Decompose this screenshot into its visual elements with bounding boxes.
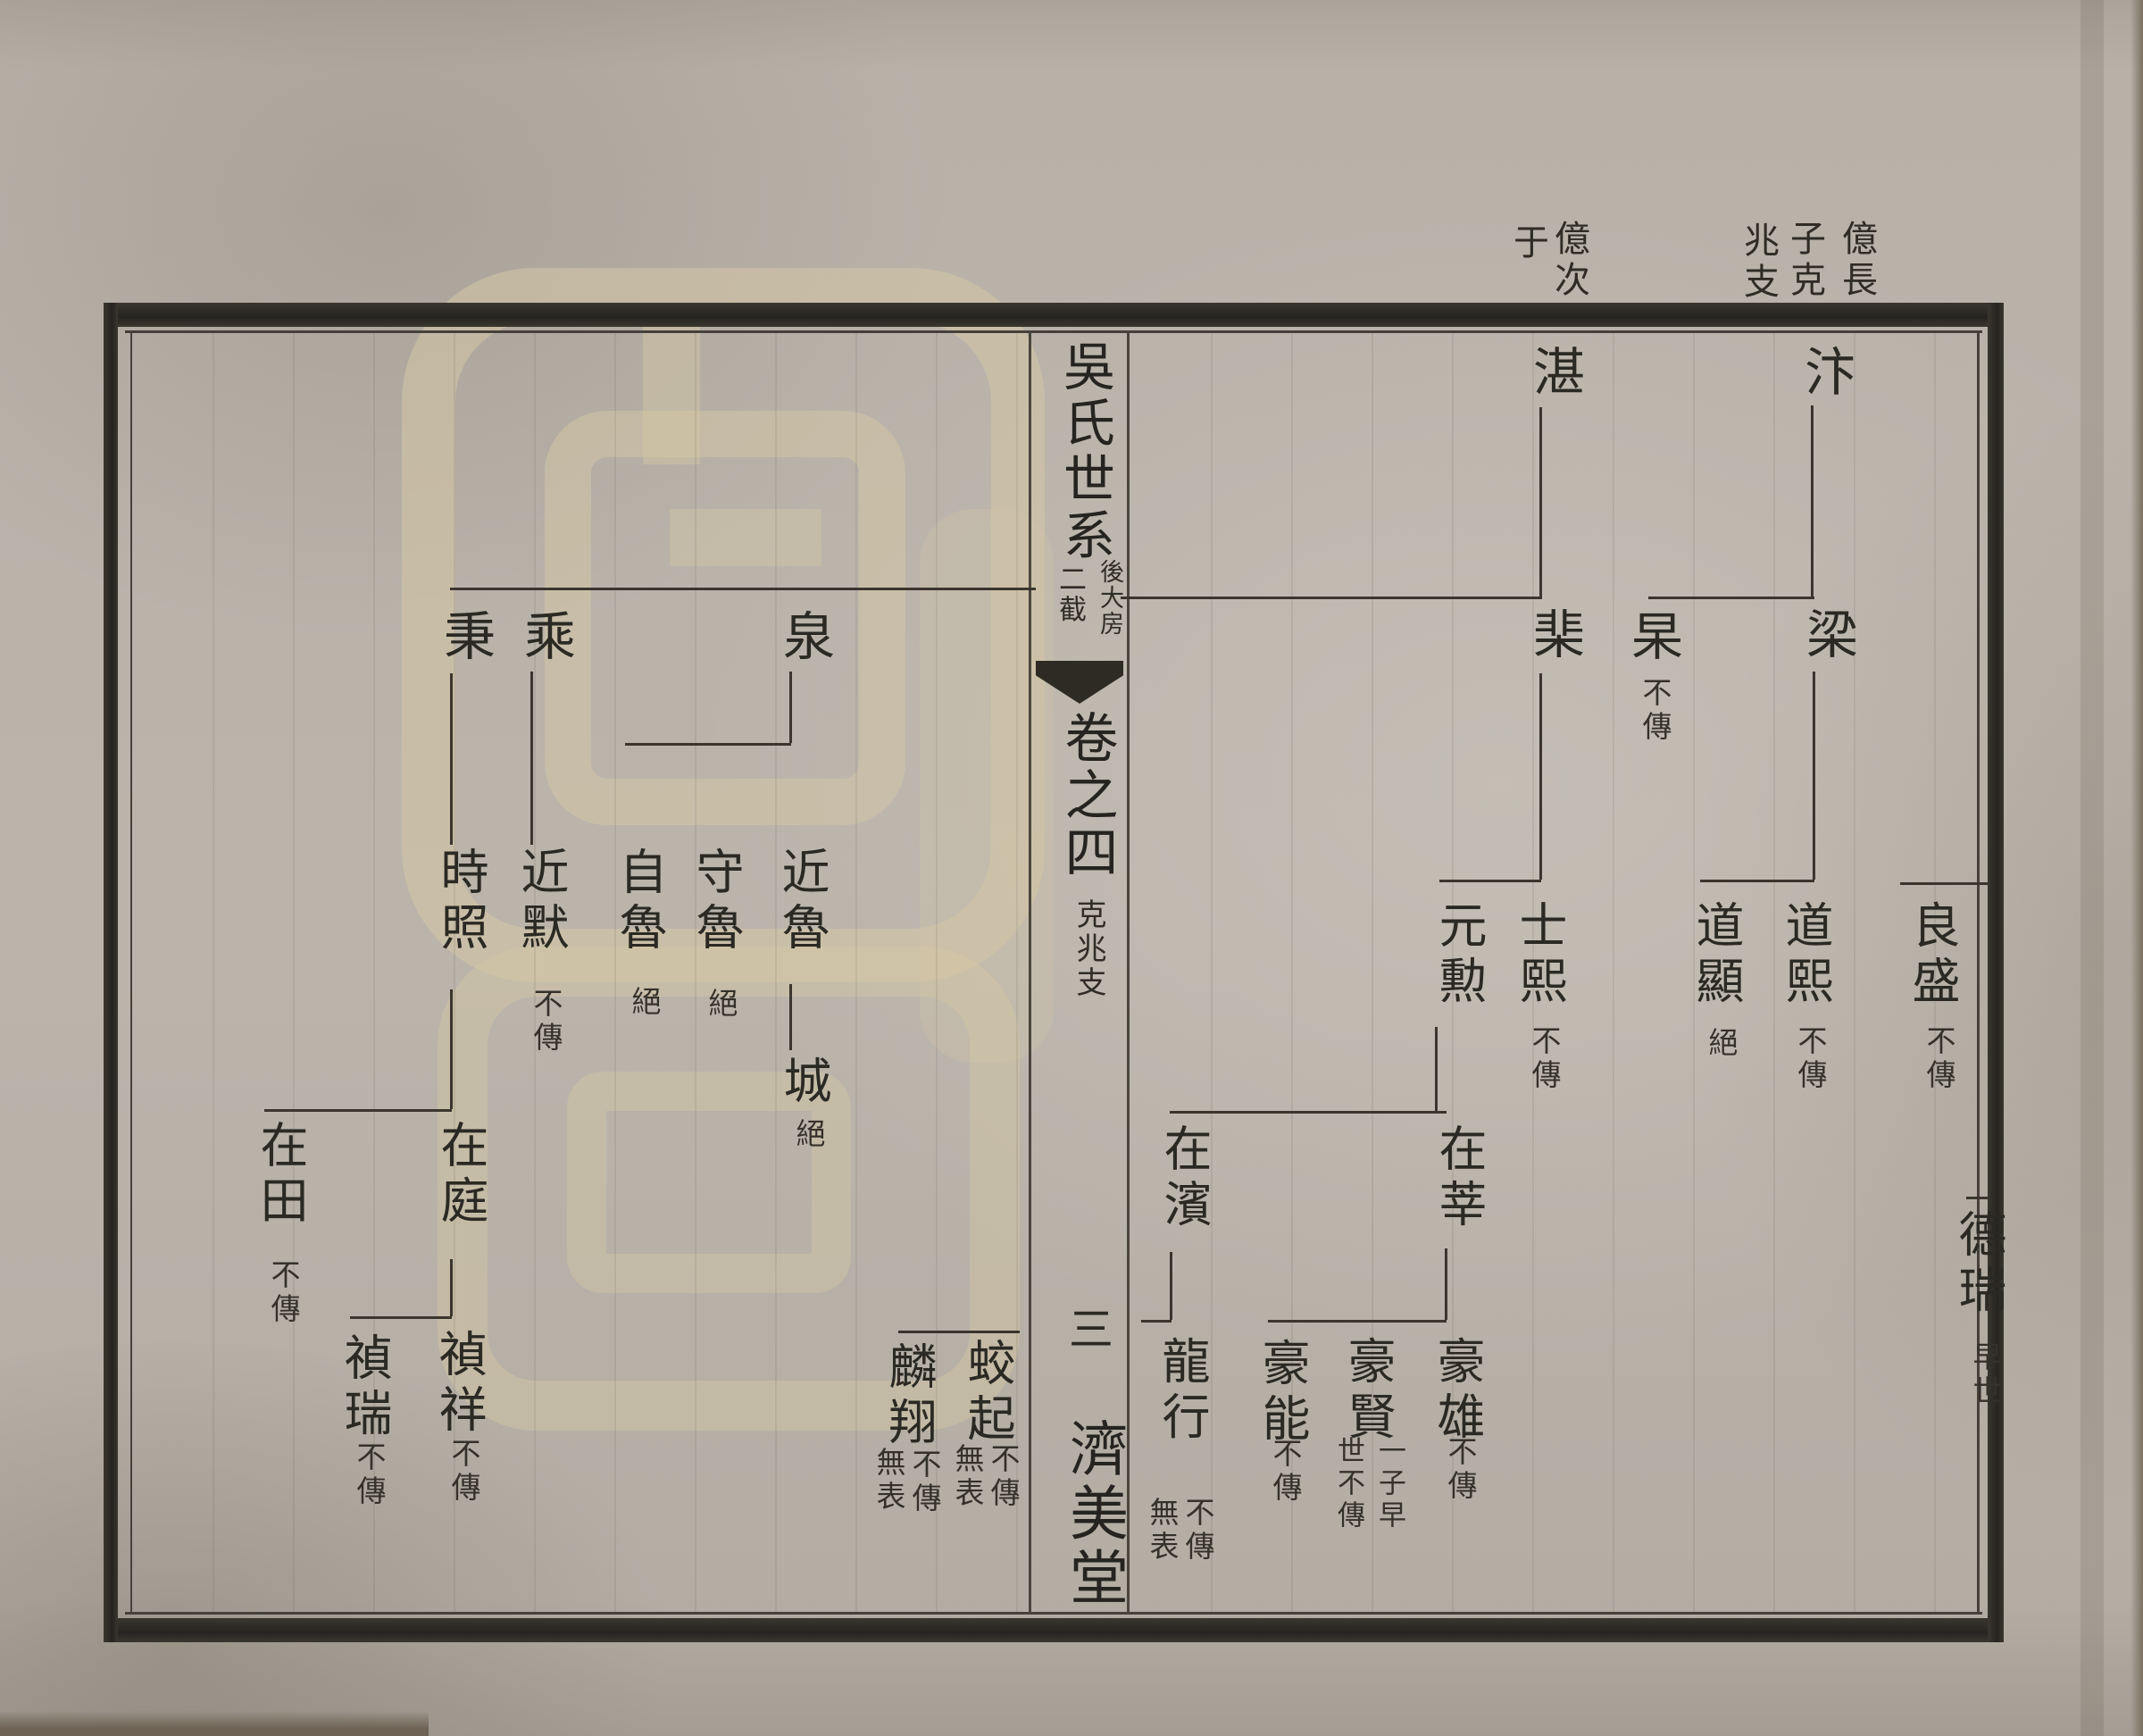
fishtail-ornament: [1036, 661, 1123, 704]
sibling-line: [1141, 1320, 1172, 1323]
person-name: 豪賢: [1332, 1336, 1403, 1447]
descent-line: [1539, 673, 1542, 880]
person-name: 在田: [245, 1120, 315, 1231]
person-note: 不傳: [1263, 1438, 1305, 1506]
person-name: 湛: [1516, 345, 1591, 404]
person-note: 無表: [945, 1443, 988, 1511]
person-note: 不傳: [1788, 1025, 1830, 1093]
person-name: 德瑞: [1943, 1209, 2014, 1320]
frame-left-inner-line: [130, 330, 132, 1615]
person-name: 自魯: [604, 847, 674, 957]
person-name: 秉: [427, 609, 502, 668]
person-name: 元勲: [1423, 900, 1494, 1011]
person-note: 不傳: [1438, 1436, 1480, 1504]
person-name: 在莘: [1423, 1123, 1494, 1234]
spine-left-rule: [1029, 332, 1031, 1613]
person-name: 時照: [425, 847, 496, 957]
frame-top-bar: [104, 303, 2004, 327]
frame-top-inner-line: [125, 330, 1982, 333]
sibling-line: [1648, 597, 1814, 599]
sibling-line-from-frame: [1966, 1197, 1989, 1199]
page-bottom-edge-shadow: [0, 1711, 429, 1736]
person-name: 豪能: [1247, 1338, 1317, 1448]
person-note: 絕: [621, 986, 664, 1020]
spine-branch-label: 克兆支: [1066, 898, 1110, 1000]
page-right-edge-shadow: [2080, 0, 2104, 1736]
person-name: 汴: [1788, 345, 1863, 404]
person-note: 不傳: [523, 988, 566, 1056]
descent-line: [450, 989, 453, 1109]
person-note: 不傳: [346, 1441, 389, 1509]
person-name: 禎祥: [423, 1329, 494, 1440]
sibling-line: [264, 1109, 452, 1112]
descent-line: [1170, 1252, 1172, 1320]
sibling-line-across-spine: [898, 1331, 1020, 1333]
person-name: 在庭: [425, 1120, 496, 1231]
person-name: 城: [768, 1056, 838, 1111]
person-name: 棐: [1516, 607, 1591, 666]
frame-bottom-inner-line: [125, 1612, 1982, 1615]
branch-header-right-col3: 兆支: [1732, 221, 1784, 304]
person-note: 早世: [1963, 1341, 2005, 1409]
branch-header-right-col2: 子克: [1779, 220, 1830, 302]
spine-section-left: 二截: [1050, 564, 1090, 625]
person-name: 守魯: [680, 847, 751, 957]
person-name: 龍行: [1147, 1336, 1217, 1447]
frame-bottom-bar: [104, 1618, 2004, 1642]
sibling-line-to-spine: [450, 588, 1036, 590]
person-note: 不傳: [1916, 1025, 1959, 1093]
person-note: 絕: [786, 1118, 829, 1152]
descent-line: [1435, 1027, 1438, 1111]
descent-line: [789, 984, 792, 1050]
sibling-line: [1439, 880, 1541, 882]
person-name: 禎瑞: [329, 1332, 399, 1443]
person-note: 不傳: [1522, 1025, 1564, 1093]
descent-line: [530, 672, 533, 845]
person-note: 不傳: [1632, 677, 1675, 745]
person-note: 無表: [866, 1447, 909, 1515]
descent-line: [1445, 1248, 1447, 1320]
sibling-line-from-frame: [1900, 882, 1989, 885]
branch-header-left-col2: 于: [1502, 223, 1554, 264]
person-name: 道熙: [1770, 900, 1840, 1011]
descent-line: [1813, 672, 1815, 880]
person-note: 不傳: [261, 1259, 304, 1327]
sibling-line: [1170, 1111, 1447, 1114]
person-note: 一子早: [1370, 1436, 1410, 1532]
spine-page-number: 三: [1055, 1306, 1120, 1350]
person-note: 不傳: [441, 1438, 484, 1506]
person-name: 良盛: [1897, 900, 1967, 1011]
person-name: 道顯: [1680, 900, 1751, 1011]
person-name: 豪雄: [1422, 1336, 1492, 1447]
person-note: 無表: [1139, 1497, 1182, 1565]
spine-book-title: 吳氏世系: [1046, 339, 1122, 564]
descent-line: [1811, 405, 1814, 598]
person-name: 近默: [505, 847, 576, 957]
branch-header-right-col1: 億長: [1830, 220, 1882, 302]
frame-right-bar: [1988, 303, 2004, 1642]
descent-line: [450, 1259, 453, 1316]
sibling-line: [625, 743, 791, 746]
person-name: 乘: [507, 609, 582, 668]
person-name: 泉: [766, 609, 841, 668]
descent-line: [1539, 407, 1542, 598]
person-name: 士熙: [1504, 900, 1574, 1011]
spine-volume-label: 卷之四: [1048, 710, 1126, 881]
frame-right-inner-line: [1977, 330, 1980, 1615]
sibling-line: [350, 1316, 452, 1319]
person-name: 梁: [1789, 607, 1864, 666]
descent-line: [450, 673, 453, 845]
sibling-line-to-spine: [1121, 597, 1542, 599]
page-right-edge: [2130, 0, 2143, 1736]
sibling-line: [1268, 1320, 1447, 1323]
person-name: 近魯: [766, 847, 837, 957]
spine-hall-mark: 濟美堂: [1050, 1418, 1136, 1611]
person-note: 絕: [698, 988, 741, 1022]
person-note: 世不傳: [1329, 1436, 1369, 1532]
frame-left-bar: [104, 303, 118, 1642]
person-name: 麟翔: [873, 1341, 944, 1452]
sibling-line: [1700, 880, 1814, 882]
scanned-genealogy-spread: 億長 子克 兆支 億次 于 吳氏世系 後大房 二截 卷之四 克兆支 三 濟美堂 …: [0, 0, 2143, 1736]
person-name: 杲: [1614, 609, 1689, 668]
person-name: 蛟起: [952, 1338, 1022, 1448]
descent-line: [789, 672, 792, 743]
person-note: 絕: [1698, 1027, 1741, 1061]
person-name: 在濱: [1148, 1123, 1219, 1234]
